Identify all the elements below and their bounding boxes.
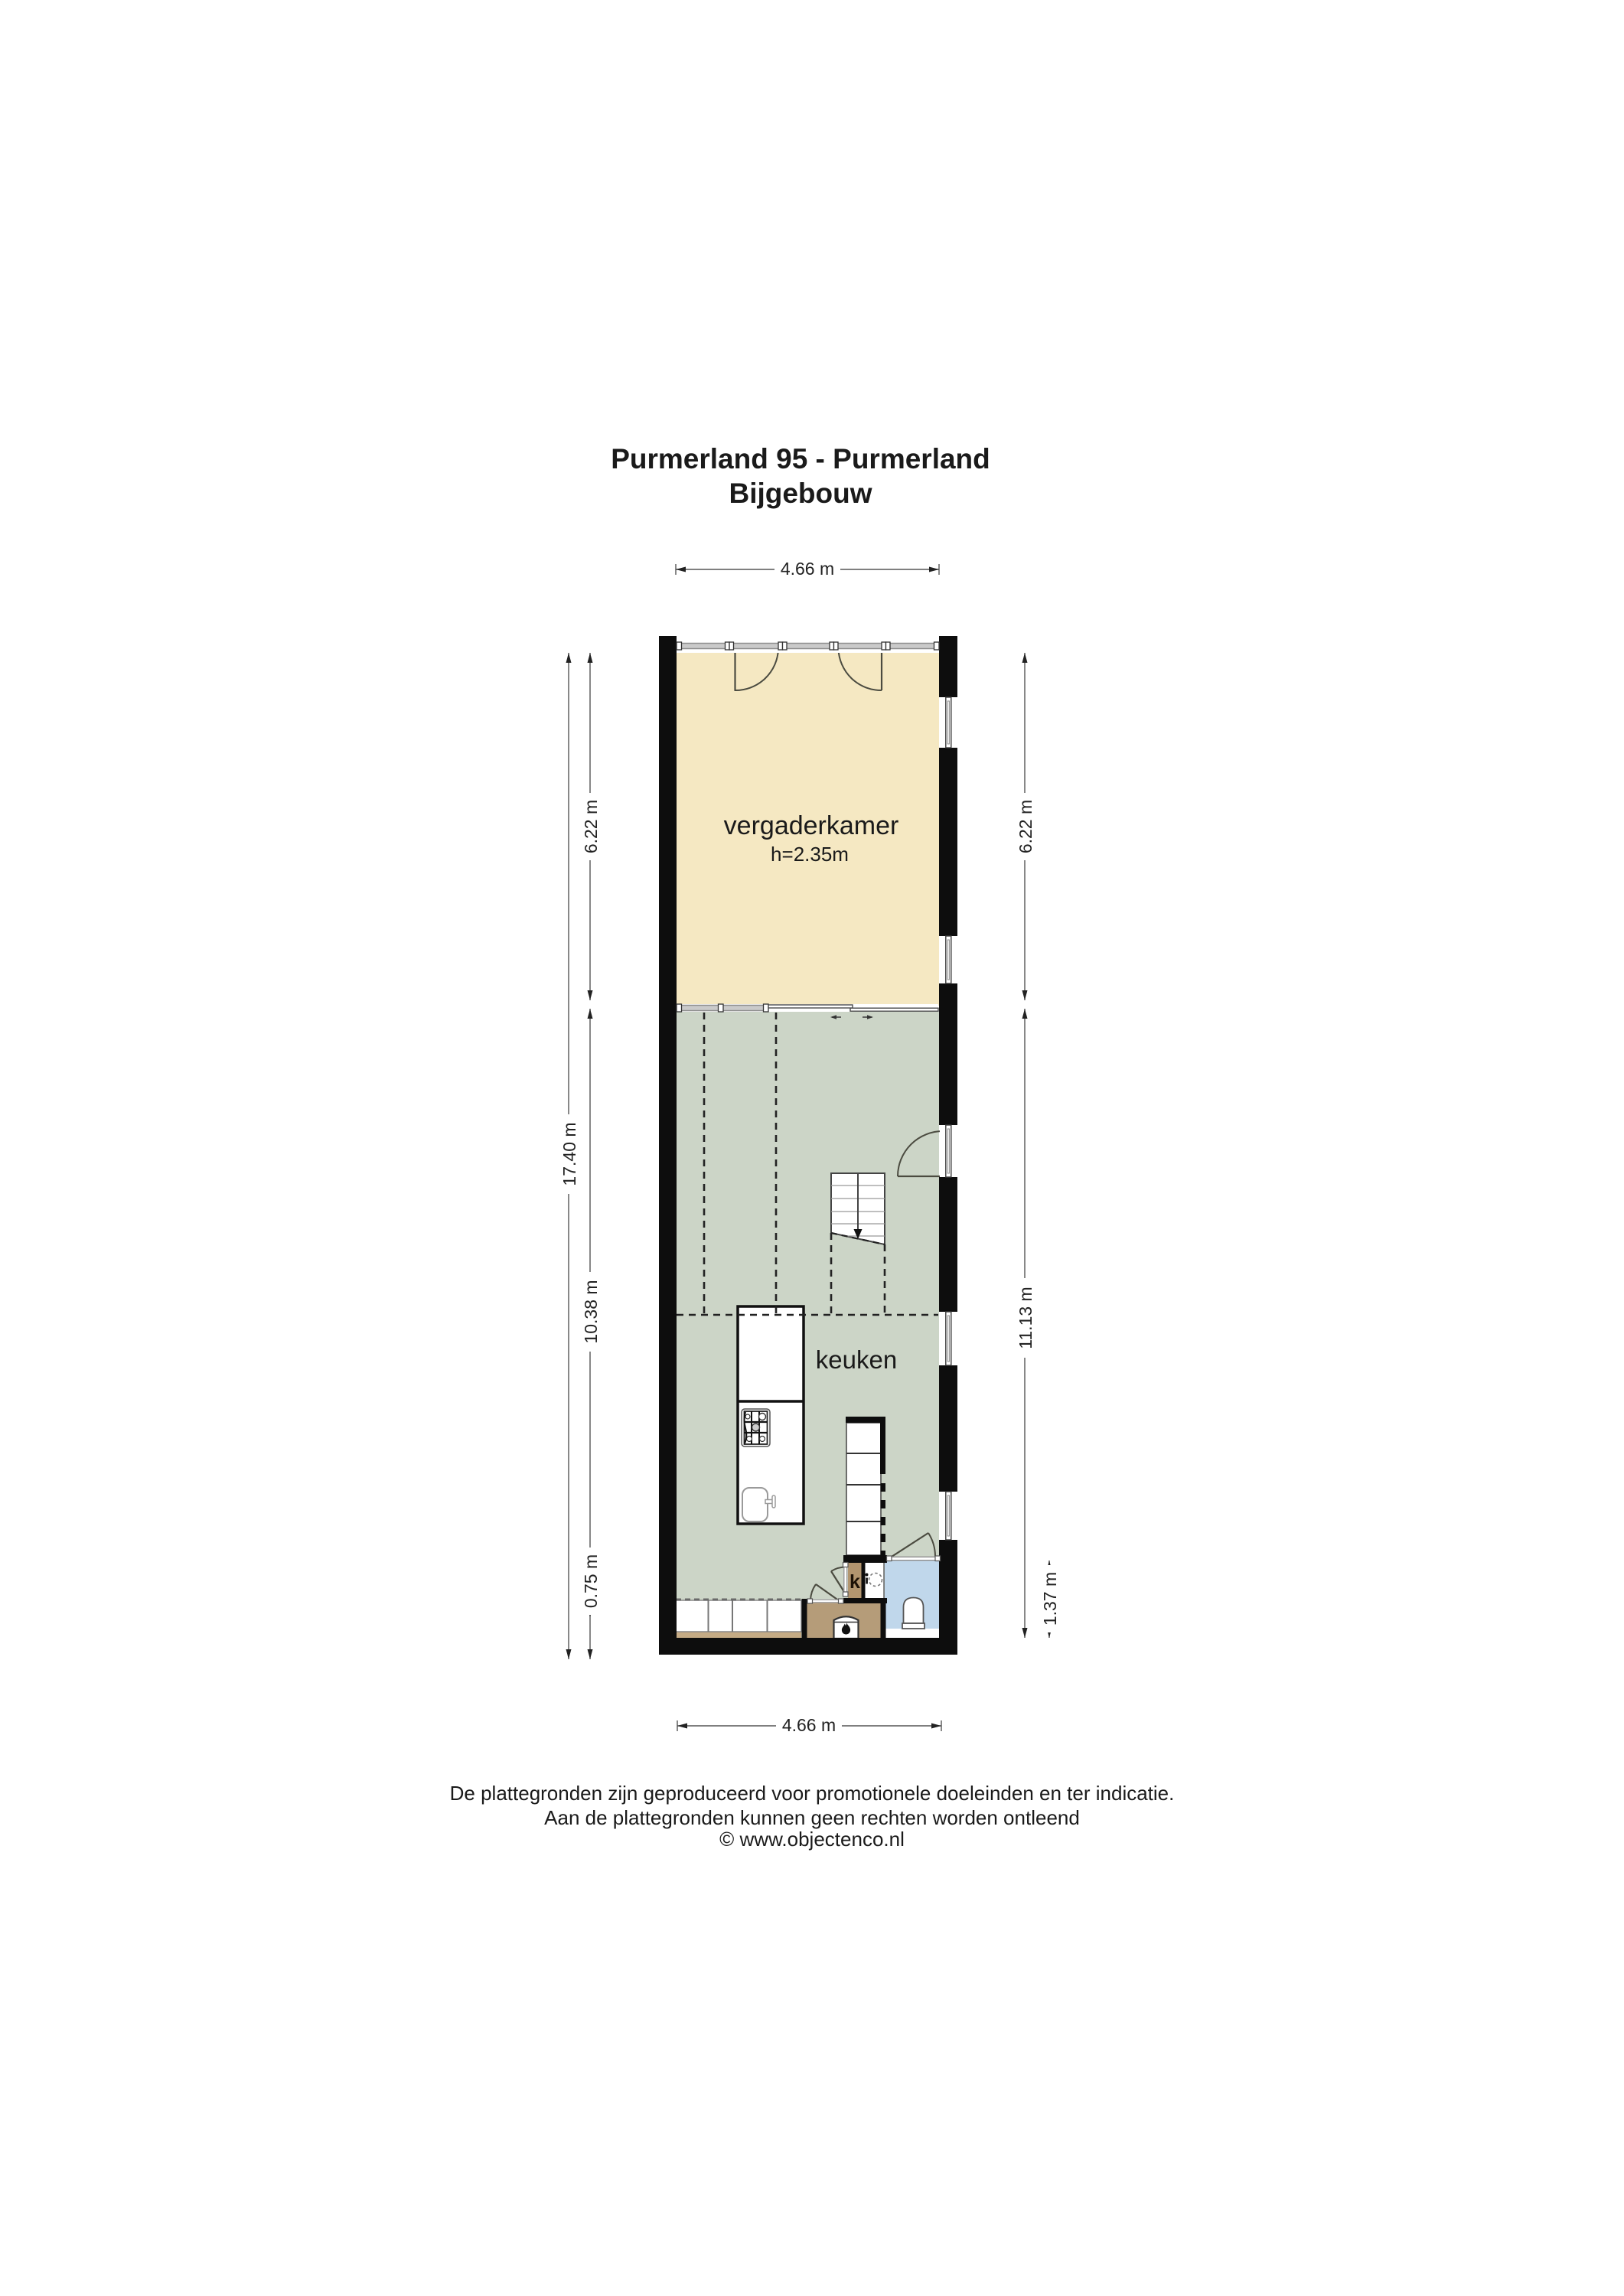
svg-text:k: k [850, 1571, 860, 1593]
svg-text:Purmerland 95 - Purmerland: Purmerland 95 - Purmerland [611, 443, 990, 475]
svg-text:keuken: keuken [816, 1345, 897, 1374]
svg-text:h=2.35m: h=2.35m [771, 843, 849, 866]
svg-text:17.40 m: 17.40 m [559, 1122, 579, 1186]
svg-text:4.66 m: 4.66 m [782, 1715, 836, 1735]
svg-text:10.38 m: 10.38 m [581, 1280, 601, 1343]
svg-text:0.75 m: 0.75 m [581, 1554, 601, 1608]
svg-text:© www.objectenco.nl: © www.objectenco.nl [719, 1828, 905, 1851]
svg-text:Bijgebouw: Bijgebouw [729, 478, 872, 509]
svg-text:6.22 m: 6.22 m [581, 800, 601, 853]
svg-text:vergaderkamer: vergaderkamer [724, 811, 899, 840]
svg-text:6.22 m: 6.22 m [1016, 800, 1035, 853]
svg-text:4.66 m: 4.66 m [781, 559, 834, 579]
svg-text:Aan de plattegronden kunnen ge: Aan de plattegronden kunnen geen rechten… [544, 1806, 1080, 1829]
svg-text:1.37 m: 1.37 m [1040, 1572, 1060, 1626]
svg-text:11.13 m: 11.13 m [1016, 1287, 1035, 1349]
svg-text:De plattegronden zijn geproduc: De plattegronden zijn geproduceerd voor … [450, 1782, 1175, 1805]
